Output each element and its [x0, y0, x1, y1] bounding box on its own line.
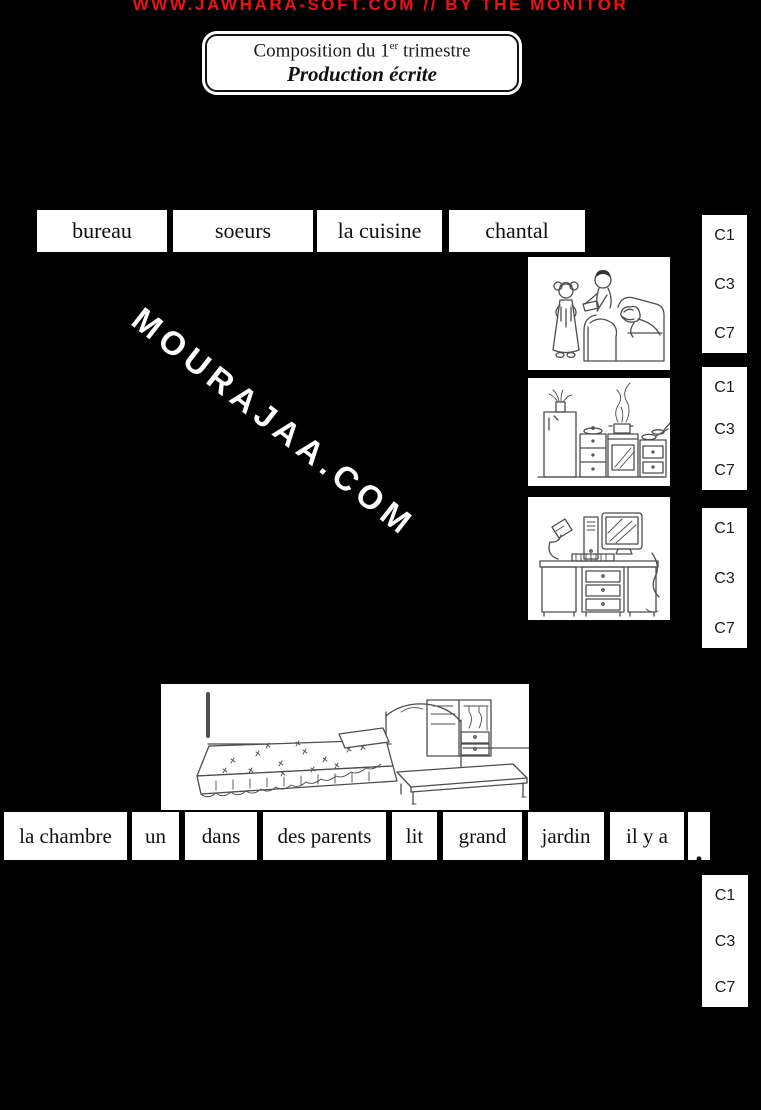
criteria-c3: C3 — [714, 421, 734, 439]
word-card-lit: lit — [392, 812, 437, 860]
criteria-c1: C1 — [714, 227, 734, 245]
word-label: il y a — [626, 824, 668, 849]
girl-figure — [553, 282, 579, 357]
criteria-c3: C3 — [714, 276, 734, 294]
monitor — [602, 513, 642, 554]
family-reading-drawing — [528, 257, 670, 370]
word-card-la-chambre: la chambre — [4, 812, 127, 860]
bedroom-illustration — [161, 684, 529, 810]
word-card-il-y-a: il y a — [610, 812, 684, 860]
criteria-c7: C7 — [714, 462, 734, 480]
watermark-text: MOURAJAA.COM — [125, 300, 423, 545]
steam — [616, 383, 630, 422]
title-line1: Composition du 1er trimestre — [253, 40, 470, 62]
criteria-c1: C1 — [715, 887, 735, 905]
criteria-c7: C7 — [714, 620, 734, 638]
criteria-c3: C3 — [714, 570, 734, 588]
criteria-strip-3: C1 C3 C7 — [702, 508, 747, 648]
computer-desk-drawing — [528, 497, 670, 620]
cat-tail — [646, 553, 659, 612]
criteria-c7: C7 — [715, 979, 735, 997]
criteria-c3: C3 — [715, 933, 735, 951]
criteria-strip-1: C1 C3 C7 — [702, 215, 747, 353]
counter — [640, 423, 670, 477]
bedroom-drawing — [161, 684, 529, 810]
word-label: la cuisine — [338, 218, 422, 244]
title-line2: Production écrite — [287, 63, 437, 86]
word-label: la chambre — [19, 824, 112, 849]
ordinal-superscript: er — [390, 40, 399, 52]
criteria-strip-4: C1 C3 C7 — [702, 875, 748, 1007]
desk-lamp — [549, 519, 572, 559]
kitchen-drawing — [528, 378, 670, 486]
word-label: lit — [406, 824, 424, 849]
criteria-c7: C7 — [714, 325, 734, 343]
word-label: jardin — [542, 824, 591, 849]
word-label: des parents — [278, 824, 372, 849]
low-table — [397, 764, 527, 804]
criteria-c1: C1 — [714, 520, 734, 538]
word-label: . — [695, 844, 703, 861]
desk — [540, 561, 658, 616]
word-label: grand — [459, 824, 507, 849]
word-card-jardin: jardin — [528, 812, 604, 860]
word-card-bureau: bureau — [37, 210, 167, 252]
word-card-chantal: chantal — [449, 210, 585, 252]
worksheet-page: WWW.JAWHARA-SOFT.COM // BY THE MONITOR C… — [0, 0, 761, 1110]
fridge — [544, 390, 576, 477]
word-label: dans — [202, 824, 241, 849]
keyboard — [572, 554, 614, 561]
stove — [608, 383, 638, 477]
word-card-la-cuisine: la cuisine — [317, 210, 442, 252]
word-label: un — [145, 824, 166, 849]
title-box: Composition du 1er trimestre Production … — [205, 34, 519, 92]
word-card-grand: grand — [443, 812, 522, 860]
word-card-soeurs: soeurs — [173, 210, 313, 252]
site-banner: WWW.JAWHARA-SOFT.COM // BY THE MONITOR — [0, 0, 761, 15]
kitchen-illustration — [528, 378, 670, 486]
family-reading-illustration — [528, 257, 670, 370]
word-label: bureau — [72, 218, 132, 244]
computer-desk-illustration — [528, 497, 670, 620]
criteria-c1: C1 — [714, 379, 734, 397]
criteria-strip-2: C1 C3 C7 — [702, 367, 747, 490]
sofa — [584, 297, 664, 361]
word-card-period: . — [688, 812, 710, 860]
word-label: soeurs — [215, 218, 271, 244]
cabinet-drawers — [580, 427, 606, 477]
boy-figure — [583, 270, 611, 311]
word-card-des-parents: des parents — [263, 812, 386, 860]
word-card-dans: dans — [185, 812, 257, 860]
computer-tower — [584, 517, 598, 559]
word-label: chantal — [485, 218, 549, 244]
word-card-un: un — [132, 812, 179, 860]
